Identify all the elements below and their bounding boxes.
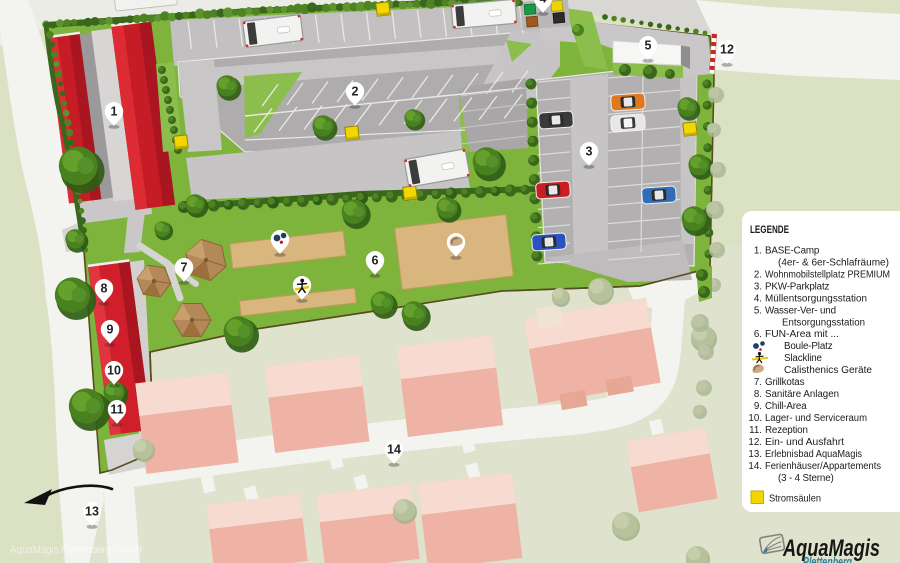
svg-text:13.: 13. [748, 449, 762, 460]
svg-text:2: 2 [352, 84, 359, 98]
svg-text:6.: 6. [754, 329, 762, 340]
svg-text:Stromsäulen: Stromsäulen [769, 494, 821, 505]
svg-text:3.: 3. [754, 282, 762, 293]
svg-text:14.: 14. [748, 461, 762, 472]
svg-text:Wohnmobilstellplatz PREMIUM: Wohnmobilstellplatz PREMIUM [765, 270, 890, 281]
svg-text:2.: 2. [754, 270, 762, 281]
svg-text:(4er- & 6er-Schlafräume): (4er- & 6er-Schlafräume) [778, 258, 889, 269]
svg-text:Grillkotas: Grillkotas [765, 377, 805, 388]
svg-text:12: 12 [720, 42, 734, 56]
svg-text:4.: 4. [754, 294, 762, 305]
svg-text:7: 7 [181, 260, 188, 274]
svg-text:Slackline: Slackline [784, 353, 823, 364]
svg-text:13: 13 [85, 504, 99, 518]
svg-text:11.: 11. [749, 425, 762, 436]
svg-text:Rezeption: Rezeption [765, 425, 808, 436]
svg-text:7.: 7. [754, 377, 762, 388]
svg-text:9: 9 [107, 322, 114, 336]
svg-text:Erlebnisbad AquaMagis: Erlebnisbad AquaMagis [765, 449, 862, 460]
svg-text:11: 11 [110, 402, 123, 416]
svg-text:Entsorgungsstation: Entsorgungsstation [782, 318, 865, 329]
svg-text:LEGENDE: LEGENDE [750, 224, 789, 236]
svg-text:10: 10 [107, 363, 121, 377]
svg-text:Müllentsorgungsstation: Müllentsorgungsstation [765, 294, 867, 305]
svg-text:8: 8 [101, 281, 108, 295]
svg-text:8.: 8. [754, 389, 762, 400]
svg-text:Wasser-Ver- und: Wasser-Ver- und [765, 306, 836, 317]
svg-text:Plettenberg: Plettenberg [803, 555, 852, 563]
svg-text:Boule-Platz: Boule-Platz [784, 341, 833, 352]
svg-text:BASE-Camp: BASE-Camp [765, 246, 820, 257]
svg-text:5: 5 [645, 38, 652, 52]
svg-text:10.: 10. [748, 413, 762, 424]
svg-text:PKW-Parkplatz: PKW-Parkplatz [765, 282, 830, 293]
svg-text:14: 14 [387, 442, 401, 456]
svg-text:6: 6 [372, 253, 379, 267]
svg-text:1.: 1. [754, 246, 762, 257]
svg-text:Sanitäre Anlagen: Sanitäre Anlagen [765, 389, 839, 400]
svg-text:5.: 5. [754, 306, 762, 317]
svg-text:Calisthenics Geräte: Calisthenics Geräte [784, 365, 873, 376]
svg-text:FUN-Area mit ...: FUN-Area mit ... [765, 329, 839, 340]
svg-text:4: 4 [540, 0, 547, 5]
svg-text:9.: 9. [754, 401, 762, 412]
svg-text:Ein- und Ausfahrt: Ein- und Ausfahrt [765, 437, 844, 448]
svg-text:1: 1 [111, 104, 118, 118]
svg-text:Chill-Area: Chill-Area [765, 401, 807, 412]
svg-text:AquaMagis Plettenberg GmbH: AquaMagis Plettenberg GmbH [10, 544, 142, 556]
svg-text:3: 3 [586, 144, 593, 158]
svg-text:Lager- und Serviceraum: Lager- und Serviceraum [765, 413, 867, 424]
svg-text:Ferienhäuser/Appartements: Ferienhäuser/Appartements [765, 461, 881, 472]
svg-text:(3 - 4 Sterne): (3 - 4 Sterne) [778, 473, 834, 484]
svg-text:12.: 12. [748, 437, 762, 448]
